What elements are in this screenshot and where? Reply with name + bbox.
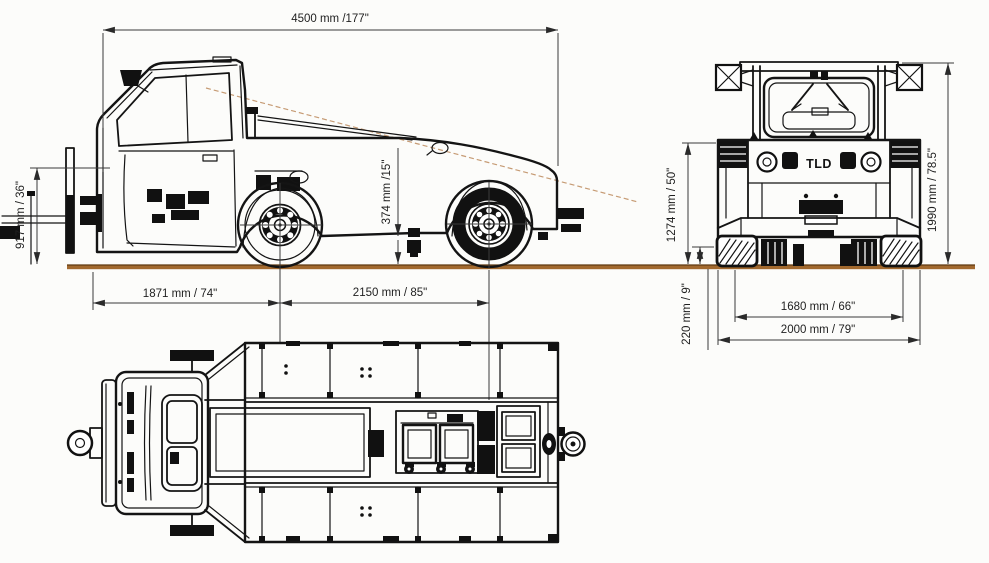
left-fender-grille xyxy=(718,140,748,168)
overall-length-label: 4500 mm /177" xyxy=(291,13,369,25)
bumper-clearance-label: 220 mm / 9" xyxy=(681,283,693,345)
left-roof-mirror xyxy=(716,65,753,90)
dim-bumper-clearance: 220 mm / 9" xyxy=(681,247,714,350)
rear-hitch-top xyxy=(558,427,585,461)
cab-interior-components xyxy=(147,189,209,223)
front-view-wheels xyxy=(717,236,921,266)
coupling-height-label: 917 mm / 36" xyxy=(15,181,27,249)
side-vehicle xyxy=(0,57,584,270)
dim-ground-clearance: 374 mm /15" xyxy=(381,148,398,264)
top-mirror-left xyxy=(170,350,214,361)
wheelbase-label: 2150 mm / 85" xyxy=(353,287,427,299)
front-tow-coupler xyxy=(799,200,843,224)
front-hitch-top xyxy=(68,428,102,458)
hood-height-label: 1274 mm / 50" xyxy=(666,168,678,242)
ground-clearance-label: 374 mm /15" xyxy=(381,160,393,225)
deck-bolts xyxy=(284,364,372,517)
top-vehicle xyxy=(68,341,585,542)
rear-hitch xyxy=(557,208,584,232)
overall-width-label: 2000 mm / 79" xyxy=(781,324,855,336)
dim-front-axle-distance: 1871 mm / 74" xyxy=(93,272,280,310)
engine-bay xyxy=(210,402,556,483)
top-view xyxy=(68,341,585,542)
dim-overall-length: 4500 mm /177" xyxy=(103,13,558,172)
brand-logo: TLD xyxy=(806,157,832,171)
dim-hood-height: 1274 mm / 50" xyxy=(666,143,716,264)
top-mirror-right xyxy=(170,525,214,536)
door-handle xyxy=(203,155,217,161)
front-wheel xyxy=(238,183,322,270)
cab-top xyxy=(102,350,214,536)
rear-wheel xyxy=(446,181,532,268)
dim-track-width: 1680 mm / 66" xyxy=(735,270,903,322)
front-view: TLD xyxy=(666,62,954,350)
side-mirror xyxy=(120,70,142,86)
right-fender-grille xyxy=(890,140,920,168)
dim-wheelbase: 2150 mm / 85" xyxy=(280,270,489,400)
front-axle-distance-label: 1871 mm / 74" xyxy=(143,288,217,300)
overall-height-label: 1990 mm / 78.5" xyxy=(927,148,939,232)
front-vehicle: TLD xyxy=(716,62,922,266)
right-roof-mirror xyxy=(885,65,922,90)
track-width-label: 1680 mm / 66" xyxy=(781,301,855,313)
technical-drawing: 4500 mm /177" 917 mm / 36" 374 mm /15" 1… xyxy=(0,0,989,563)
ground-line xyxy=(67,265,975,269)
blueprint-page: 4500 mm /177" 917 mm / 36" 374 mm /15" 1… xyxy=(0,0,989,563)
window-divider xyxy=(186,75,188,142)
